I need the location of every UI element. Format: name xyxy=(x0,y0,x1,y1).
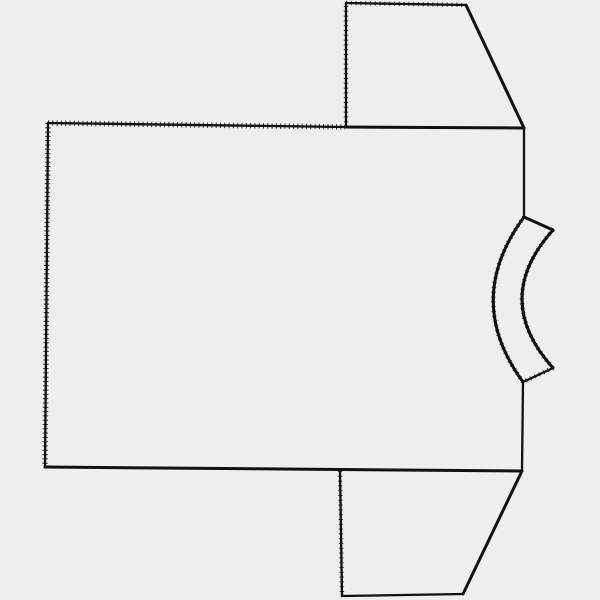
tshirt-line-drawing xyxy=(0,0,600,600)
bottom-sleeve-bottom-edge xyxy=(342,594,463,596)
bottom-sleeve-slant-edge xyxy=(463,473,521,594)
body-top-edge-serrated-line xyxy=(48,123,345,127)
body-shoulder-seam xyxy=(345,127,524,128)
serration-texture xyxy=(45,3,553,596)
tshirt-outline xyxy=(45,3,553,596)
top-sleeve-top-edge xyxy=(346,3,466,5)
body-bottom-edge xyxy=(45,467,522,471)
top-sleeve-slant-edge xyxy=(466,5,524,128)
neckband-outer-arc xyxy=(493,217,524,382)
neckband-bottom-connector xyxy=(523,368,553,382)
body-right-edge-lower xyxy=(522,382,523,471)
drawing-canvas xyxy=(0,0,600,600)
neckband-top-connector xyxy=(524,217,553,230)
neckband-inner-arc xyxy=(522,230,553,368)
